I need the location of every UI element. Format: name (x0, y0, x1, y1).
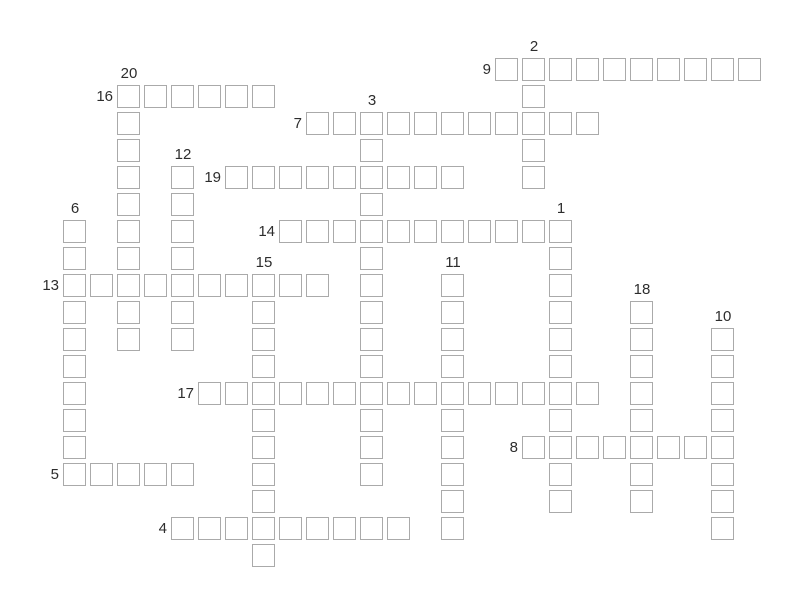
entry-number-label: 20 (112, 66, 146, 82)
crossword-cell[interactable] (576, 382, 599, 405)
crossword-cell[interactable] (630, 58, 653, 81)
crossword-cell[interactable] (117, 220, 140, 243)
crossword-cell[interactable] (252, 355, 275, 378)
entry-number-label: 16 (79, 89, 113, 105)
crossword-cell[interactable] (63, 409, 86, 432)
crossword-cell[interactable] (117, 193, 140, 216)
crossword-cell[interactable] (144, 85, 167, 108)
crossword-cell[interactable] (414, 220, 437, 243)
crossword-cell[interactable] (117, 247, 140, 270)
crossword-cell[interactable] (117, 328, 140, 351)
crossword-cell[interactable] (117, 463, 140, 486)
crossword-cell[interactable] (252, 166, 275, 189)
crossword-cell[interactable] (90, 274, 113, 297)
crossword-cell[interactable] (495, 220, 518, 243)
crossword-cell[interactable] (576, 436, 599, 459)
crossword-cell[interactable] (549, 58, 572, 81)
crossword-cell[interactable] (495, 112, 518, 135)
crossword-cell[interactable] (360, 463, 383, 486)
crossword-cell[interactable] (306, 220, 329, 243)
crossword-cell[interactable] (630, 328, 653, 351)
crossword-cell[interactable] (171, 463, 194, 486)
crossword-cell[interactable] (360, 517, 383, 540)
crossword-cell[interactable] (360, 139, 383, 162)
crossword-cell[interactable] (117, 139, 140, 162)
crossword-cell[interactable] (441, 328, 464, 351)
crossword-cell[interactable] (333, 382, 356, 405)
crossword-cell[interactable] (684, 436, 707, 459)
crossword-cell[interactable] (63, 247, 86, 270)
entry-number-label: 1 (544, 201, 578, 217)
crossword-cell[interactable] (441, 409, 464, 432)
crossword-cell[interactable] (279, 517, 302, 540)
crossword-cell[interactable] (252, 409, 275, 432)
crossword-cell[interactable] (225, 382, 248, 405)
crossword-cell[interactable] (549, 463, 572, 486)
crossword-cell[interactable] (441, 463, 464, 486)
crossword-cell[interactable] (117, 85, 140, 108)
crossword-cell[interactable] (495, 382, 518, 405)
crossword-cell[interactable] (549, 490, 572, 513)
crossword-cell[interactable] (225, 517, 248, 540)
crossword-cell[interactable] (711, 328, 734, 351)
entry-number-label: 17 (160, 386, 194, 402)
crossword-cell[interactable] (738, 58, 761, 81)
crossword-cell[interactable] (441, 490, 464, 513)
entry-number-label: 4 (133, 521, 167, 537)
crossword-cell[interactable] (306, 274, 329, 297)
crossword-cell[interactable] (684, 58, 707, 81)
crossword-cell[interactable] (468, 220, 491, 243)
crossword-cell[interactable] (522, 220, 545, 243)
crossword-cell[interactable] (279, 382, 302, 405)
crossword-cell[interactable] (468, 382, 491, 405)
entry-number-label: 2 (517, 39, 551, 55)
entry-number-label: 18 (625, 282, 659, 298)
crossword-cell[interactable] (306, 112, 329, 135)
crossword-cell[interactable] (63, 301, 86, 324)
crossword-cell[interactable] (549, 328, 572, 351)
crossword-cell[interactable] (657, 58, 680, 81)
crossword-cell[interactable] (144, 463, 167, 486)
crossword-cell[interactable] (252, 301, 275, 324)
crossword-cell[interactable] (252, 517, 275, 540)
crossword-cell[interactable] (549, 274, 572, 297)
crossword-cell[interactable] (360, 166, 383, 189)
crossword-cell[interactable] (144, 274, 167, 297)
crossword-cell[interactable] (630, 355, 653, 378)
crossword-cell[interactable] (387, 517, 410, 540)
entry-number-label: 19 (187, 170, 221, 186)
crossword-cell[interactable] (441, 355, 464, 378)
crossword-cell[interactable] (576, 112, 599, 135)
entry-number-label: 5 (25, 467, 59, 483)
crossword-cell[interactable] (279, 274, 302, 297)
crossword-cell[interactable] (549, 112, 572, 135)
entry-number-label: 3 (355, 93, 389, 109)
crossword-cell[interactable] (711, 490, 734, 513)
crossword-cell[interactable] (630, 490, 653, 513)
crossword-cell[interactable] (63, 328, 86, 351)
crossword-cell[interactable] (387, 220, 410, 243)
crossword-cell[interactable] (279, 166, 302, 189)
crossword-cell[interactable] (171, 274, 194, 297)
entry-number-label: 11 (436, 255, 470, 271)
crossword-cell[interactable] (630, 301, 653, 324)
entry-number-label: 6 (58, 201, 92, 217)
crossword-cell[interactable] (360, 409, 383, 432)
crossword-cell[interactable] (441, 517, 464, 540)
crossword-cell[interactable] (549, 436, 572, 459)
crossword-cell[interactable] (441, 220, 464, 243)
crossword-cell[interactable] (522, 139, 545, 162)
crossword-cell[interactable] (279, 220, 302, 243)
entry-number-label: 9 (457, 62, 491, 78)
crossword-cell[interactable] (549, 355, 572, 378)
crossword-cell[interactable] (360, 220, 383, 243)
crossword-cell[interactable] (711, 382, 734, 405)
crossword-cell[interactable] (657, 436, 680, 459)
crossword-cell[interactable] (252, 382, 275, 405)
crossword-cell[interactable] (63, 382, 86, 405)
crossword-cell[interactable] (252, 544, 275, 567)
crossword-cell[interactable] (630, 463, 653, 486)
crossword-cell[interactable] (360, 382, 383, 405)
crossword-cell[interactable] (603, 58, 626, 81)
crossword-cell[interactable] (333, 220, 356, 243)
crossword-cell[interactable] (441, 382, 464, 405)
crossword-cell[interactable] (306, 517, 329, 540)
crossword-cell[interactable] (522, 85, 545, 108)
crossword-cell[interactable] (171, 193, 194, 216)
crossword-cell[interactable] (252, 490, 275, 513)
crossword-cell[interactable] (225, 274, 248, 297)
crossword-cell[interactable] (603, 436, 626, 459)
crossword-cell[interactable] (117, 301, 140, 324)
crossword-cell[interactable] (198, 274, 221, 297)
entry-number-label: 7 (268, 116, 302, 132)
crossword-cell[interactable] (522, 58, 545, 81)
crossword-cell[interactable] (63, 220, 86, 243)
crossword-cell[interactable] (711, 517, 734, 540)
crossword-cell[interactable] (576, 58, 599, 81)
crossword-cell[interactable] (171, 247, 194, 270)
entry-number-label: 12 (166, 147, 200, 163)
crossword-cell[interactable] (252, 274, 275, 297)
entry-number-label: 14 (241, 224, 275, 240)
crossword-cell[interactable] (549, 220, 572, 243)
crossword-cell[interactable] (360, 436, 383, 459)
crossword-cell[interactable] (306, 382, 329, 405)
crossword-cell[interactable] (387, 382, 410, 405)
crossword-cell[interactable] (90, 463, 113, 486)
crossword-cell[interactable] (441, 166, 464, 189)
crossword-cell[interactable] (441, 301, 464, 324)
crossword-cell[interactable] (468, 112, 491, 135)
crossword-cell[interactable] (711, 463, 734, 486)
crossword-cell[interactable] (711, 58, 734, 81)
crossword-cell[interactable] (252, 436, 275, 459)
crossword-cell[interactable] (171, 301, 194, 324)
crossword-cell[interactable] (171, 220, 194, 243)
crossword-cell[interactable] (360, 247, 383, 270)
crossword-cell[interactable] (549, 301, 572, 324)
crossword-cell[interactable] (63, 436, 86, 459)
crossword-cell[interactable] (360, 328, 383, 351)
crossword-cell[interactable] (252, 463, 275, 486)
crossword-cell[interactable] (441, 112, 464, 135)
crossword-cell[interactable] (333, 517, 356, 540)
crossword-cell[interactable] (711, 409, 734, 432)
crossword-cell[interactable] (360, 274, 383, 297)
crossword-cell[interactable] (252, 328, 275, 351)
crossword-board: 1234567891011121314151617181920 (0, 0, 800, 600)
crossword-cell[interactable] (117, 274, 140, 297)
crossword-cell[interactable] (630, 436, 653, 459)
crossword-cell[interactable] (522, 112, 545, 135)
crossword-cell[interactable] (549, 247, 572, 270)
crossword-cell[interactable] (387, 166, 410, 189)
crossword-cell[interactable] (171, 328, 194, 351)
crossword-cell[interactable] (252, 85, 275, 108)
crossword-cell[interactable] (549, 409, 572, 432)
crossword-cell[interactable] (360, 193, 383, 216)
entry-number-label: 13 (25, 278, 59, 294)
crossword-cell[interactable] (198, 517, 221, 540)
crossword-cell[interactable] (414, 382, 437, 405)
crossword-cell[interactable] (306, 166, 329, 189)
crossword-cell[interactable] (495, 58, 518, 81)
crossword-cell[interactable] (441, 274, 464, 297)
crossword-cell[interactable] (333, 166, 356, 189)
crossword-cell[interactable] (387, 112, 410, 135)
crossword-cell[interactable] (549, 382, 572, 405)
crossword-cell[interactable] (630, 382, 653, 405)
crossword-cell[interactable] (360, 112, 383, 135)
crossword-cell[interactable] (441, 436, 464, 459)
crossword-cell[interactable] (63, 463, 86, 486)
crossword-cell[interactable] (360, 301, 383, 324)
crossword-cell[interactable] (522, 166, 545, 189)
crossword-cell[interactable] (63, 355, 86, 378)
crossword-cell[interactable] (711, 436, 734, 459)
crossword-cell[interactable] (171, 85, 194, 108)
crossword-cell[interactable] (198, 382, 221, 405)
entry-number-label: 15 (247, 255, 281, 271)
crossword-cell[interactable] (414, 112, 437, 135)
crossword-cell[interactable] (117, 166, 140, 189)
crossword-cell[interactable] (630, 409, 653, 432)
crossword-cell[interactable] (198, 85, 221, 108)
crossword-cell[interactable] (522, 436, 545, 459)
crossword-cell[interactable] (225, 166, 248, 189)
crossword-cell[interactable] (414, 166, 437, 189)
crossword-cell[interactable] (225, 85, 248, 108)
crossword-cell[interactable] (117, 112, 140, 135)
entry-number-label: 10 (706, 309, 740, 325)
crossword-cell[interactable] (360, 355, 383, 378)
crossword-cell[interactable] (171, 517, 194, 540)
entry-number-label: 8 (484, 440, 518, 456)
crossword-cell[interactable] (63, 274, 86, 297)
crossword-cell[interactable] (333, 112, 356, 135)
crossword-cell[interactable] (711, 355, 734, 378)
crossword-cell[interactable] (522, 382, 545, 405)
